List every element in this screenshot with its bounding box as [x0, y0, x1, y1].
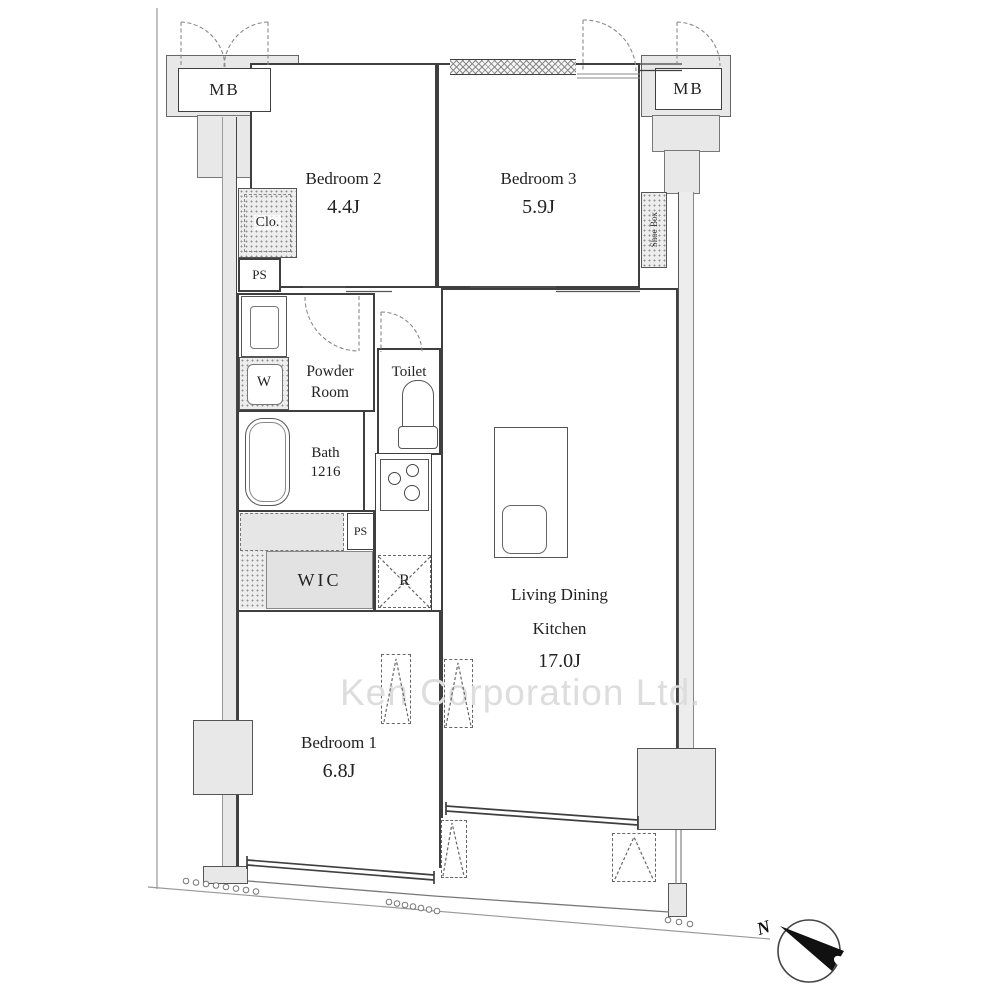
- shoe-box-label: Shoe Box: [649, 212, 659, 247]
- compass-circle: [778, 920, 840, 982]
- balcony-rail: [248, 881, 669, 912]
- pipe-space-upper: PS: [238, 258, 281, 292]
- washing-machine-inner: [247, 364, 283, 405]
- meter-box-right: MB: [655, 68, 722, 110]
- bathtub: [245, 418, 290, 506]
- meter-box-left: MB: [178, 68, 271, 112]
- toilet-tank: [398, 426, 438, 449]
- closet-inner-dashed: [244, 194, 291, 252]
- compass-needle: [780, 926, 844, 971]
- washing-machine: [239, 357, 289, 410]
- wic-label: WIC: [298, 570, 342, 591]
- meter-box-right-label: MB: [673, 79, 703, 99]
- closet: [238, 188, 297, 258]
- burner-3: [404, 485, 420, 501]
- ground-circles: [183, 878, 693, 927]
- pipe-space-upper-label: PS: [252, 267, 266, 283]
- island-sink: [502, 505, 547, 554]
- toilet-door-arc: [381, 312, 422, 353]
- burner-2: [406, 464, 419, 477]
- compass-needle-notch: [832, 954, 848, 968]
- entry-wall-step1: [652, 115, 720, 152]
- watermark: Ken Corporation Ltd.: [340, 672, 701, 714]
- vanity-sink: [250, 306, 279, 349]
- ac-space-balcony-1: [441, 820, 467, 878]
- pillar-bottom-right: [637, 748, 716, 830]
- stove: [380, 459, 429, 511]
- meter-box-left-label: MB: [209, 80, 239, 100]
- wic-upper-shelf: [240, 513, 344, 551]
- vanity-cabinet: [241, 296, 287, 357]
- room-bedroom3: [437, 63, 640, 288]
- burner-1: [388, 472, 401, 485]
- window-hatch-top: [450, 59, 576, 75]
- toilet-bowl: [402, 380, 434, 432]
- compass: N: [753, 916, 848, 982]
- pillar-bedroom1: [193, 720, 253, 795]
- pipe-space-lower: PS: [347, 513, 374, 550]
- entry-wall-step2: [664, 150, 700, 194]
- floor-plan: MB MB Clo. PS W Bath 1216: [0, 0, 1000, 1000]
- refrigerator-space: [378, 555, 431, 608]
- stub-bottom-right: [668, 883, 687, 917]
- balcony-rail-right: [676, 830, 681, 884]
- right-wall-strip: [678, 192, 694, 752]
- pipe-space-lower-label: PS: [354, 524, 367, 539]
- kitchen-island: [494, 427, 568, 558]
- bathtub-inner: [249, 422, 286, 502]
- shoe-box: Shoe Box: [641, 192, 667, 268]
- pillar-base-left: [203, 866, 248, 884]
- ac-space-balcony-2: [612, 833, 656, 882]
- wic-closet-box: WIC: [266, 551, 373, 609]
- compass-n-label: N: [753, 916, 773, 940]
- room-bedroom1: [237, 610, 441, 868]
